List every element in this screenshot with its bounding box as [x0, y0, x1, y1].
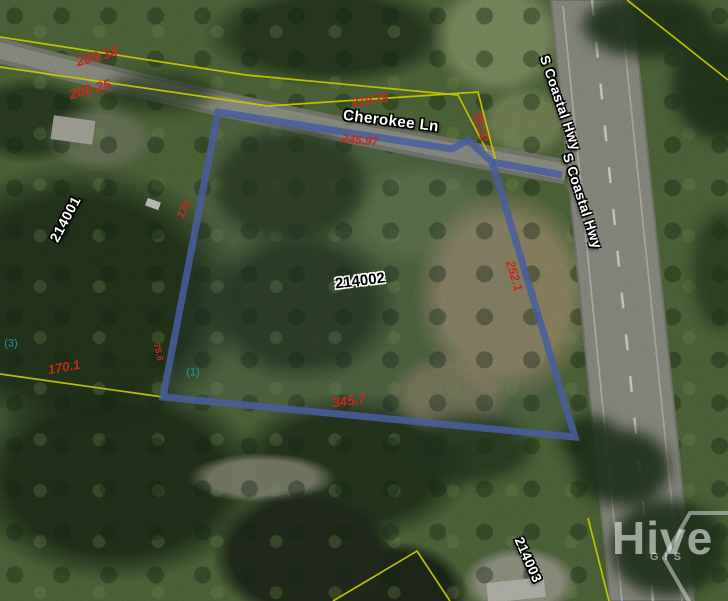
- lot-count-selected: (1): [186, 368, 199, 379]
- dimension-parcel-top: 245.97: [341, 132, 379, 148]
- hive-watermark-sub: GIS: [650, 552, 687, 563]
- aerial-parcel-map[interactable]: 200.34 200.25 219.79 245.97 32.12 252.1 …: [0, 0, 728, 601]
- lot-count-west: (3): [4, 339, 17, 350]
